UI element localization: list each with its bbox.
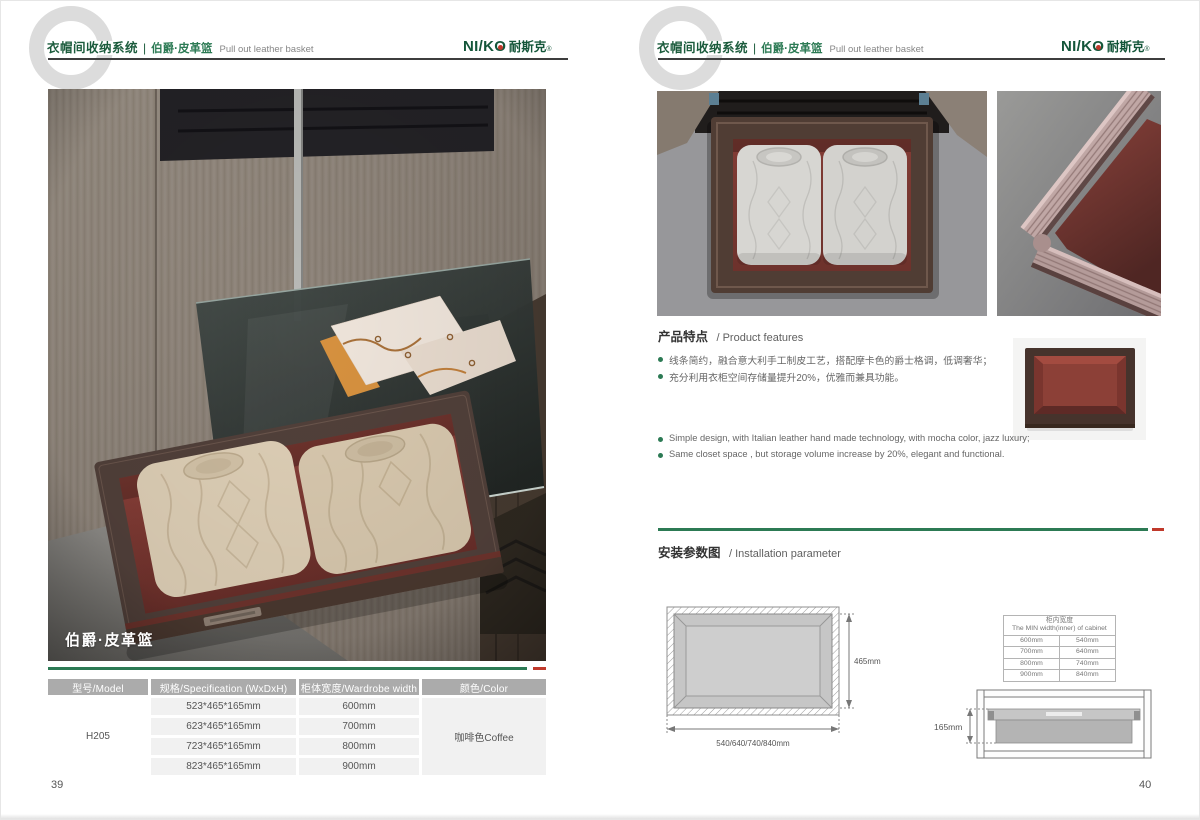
bullet-icon: [658, 374, 663, 379]
features-title: 产品特点 / Product features: [658, 326, 803, 346]
nisko-logo: NI/KO 耐斯克 ®: [1061, 36, 1150, 55]
empty-basket-product-image: [1013, 338, 1146, 440]
spec-cell: 600mm: [299, 698, 419, 715]
min-table-title-en: The MIN width(inner) of cabinet: [1012, 625, 1107, 633]
basket-topview-photo: [657, 91, 987, 316]
photo-caption: 伯爵·皮革篮: [65, 629, 154, 650]
divider-green-right: [658, 528, 1148, 531]
installation-title: 安装参数图 / Installation parameter: [658, 542, 841, 562]
table-row: 700mm 640mm: [1004, 647, 1116, 658]
logo-latin: NI/K: [1061, 38, 1092, 55]
wardrobe-photo-art: [48, 89, 546, 661]
width-dimension-label: 540/640/740/840mm: [716, 739, 790, 748]
spec-header-model: 型号/Model: [48, 679, 148, 695]
frontview-diagram: 165mm: [934, 685, 1159, 772]
table-row: 600mm 540mm: [1004, 635, 1116, 646]
basket-corner-detail-photo: [997, 91, 1161, 316]
logo-o-icon: O: [1092, 38, 1104, 55]
height-dimension-label: 165mm: [934, 722, 962, 732]
product-title-en: Pull out leather basket: [219, 44, 313, 55]
logo-reg-mark: ®: [1144, 46, 1149, 53]
min-table-title-cn: 柜内宽度: [1012, 617, 1107, 625]
wardrobe-basket-photo: [48, 89, 546, 661]
system-title: 衣帽间收纳系统: [47, 37, 138, 56]
bullet-icon: [658, 453, 663, 458]
table-row: 800mm 740mm: [1004, 658, 1116, 669]
spec-header-width: 柜体宽度/Wardrobe width: [299, 679, 419, 695]
bullet-icon: [658, 357, 663, 362]
header-rule-left: [48, 58, 568, 60]
product-title-cn: 伯爵·皮革篮: [151, 40, 212, 56]
title-separator: |: [753, 41, 756, 55]
logo-latin: NI/K: [463, 38, 494, 55]
page-number-left: 39: [51, 779, 63, 791]
spec-cell: 823*465*165mm: [151, 758, 296, 775]
min-width-table: 柜内宽度 The MIN width(inner) of cabinet 600…: [1003, 615, 1116, 682]
divider-red-left: [533, 667, 546, 670]
spec-cell: 700mm: [299, 718, 419, 735]
header-rule-right: [658, 58, 1165, 60]
feature-bullet: Same closet space , but storage volume i…: [658, 449, 1004, 459]
product-title-cn: 伯爵·皮革篮: [761, 40, 822, 56]
spec-cell: 623*465*165mm: [151, 718, 296, 735]
spec-cell: 723*465*165mm: [151, 738, 296, 755]
spec-cell: 800mm: [299, 738, 419, 755]
spec-table: 型号/Model 规格/Specification (WxDxH) 柜体宽度/W…: [48, 679, 546, 775]
table-row: 900mm 840mm: [1004, 670, 1116, 681]
spec-header-spec: 规格/Specification (WxDxH): [151, 679, 296, 695]
divider-green-left: [48, 667, 527, 670]
product-title-en: Pull out leather basket: [829, 44, 923, 55]
spec-color-cell: 咖啡色Coffee: [422, 698, 546, 775]
logo-reg-mark: ®: [546, 46, 551, 53]
page-header-left: 衣帽间收纳系统 | 伯爵·皮革篮 Pull out leather basket: [47, 37, 314, 56]
features-title-cn: 产品特点: [658, 330, 708, 344]
feature-bullet: 线条简约，融合意大利手工制皮工艺，搭配摩卡色的爵士格调，低调奢华；: [658, 353, 992, 367]
spec-cell: 523*465*165mm: [151, 698, 296, 715]
installation-title-cn: 安装参数图: [658, 546, 721, 560]
spec-model-cell: H205: [48, 698, 148, 775]
system-title: 衣帽间收纳系统: [657, 37, 748, 56]
page-header-right: 衣帽间收纳系统 | 伯爵·皮革篮 Pull out leather basket: [657, 37, 924, 56]
logo-o-icon: O: [494, 38, 506, 55]
topview-diagram: 465mm 540/640/740/840mm: [659, 601, 884, 758]
features-title-en: / Product features: [716, 332, 803, 344]
logo-cn: 耐斯克: [509, 36, 547, 55]
title-separator: |: [143, 41, 146, 55]
page-number-right: 40: [1139, 779, 1151, 791]
catalog-spread: 衣帽间收纳系统 | 伯爵·皮革篮 Pull out leather basket…: [0, 0, 1200, 820]
bullet-icon: [658, 437, 663, 442]
logo-cn: 耐斯克: [1107, 36, 1145, 55]
installation-title-en: / Installation parameter: [729, 548, 841, 560]
spec-cell: 900mm: [299, 758, 419, 775]
spec-header-color: 颜色/Color: [422, 679, 546, 695]
divider-red-right: [1152, 528, 1164, 531]
feature-bullet: Simple design, with Italian leather hand…: [658, 433, 1030, 443]
feature-bullet: 充分利用衣柜空间存储量提升20%，优雅而兼具功能。: [658, 370, 904, 384]
depth-dimension-label: 465mm: [854, 657, 881, 666]
nisko-logo: NI/KO 耐斯克 ®: [463, 36, 552, 55]
